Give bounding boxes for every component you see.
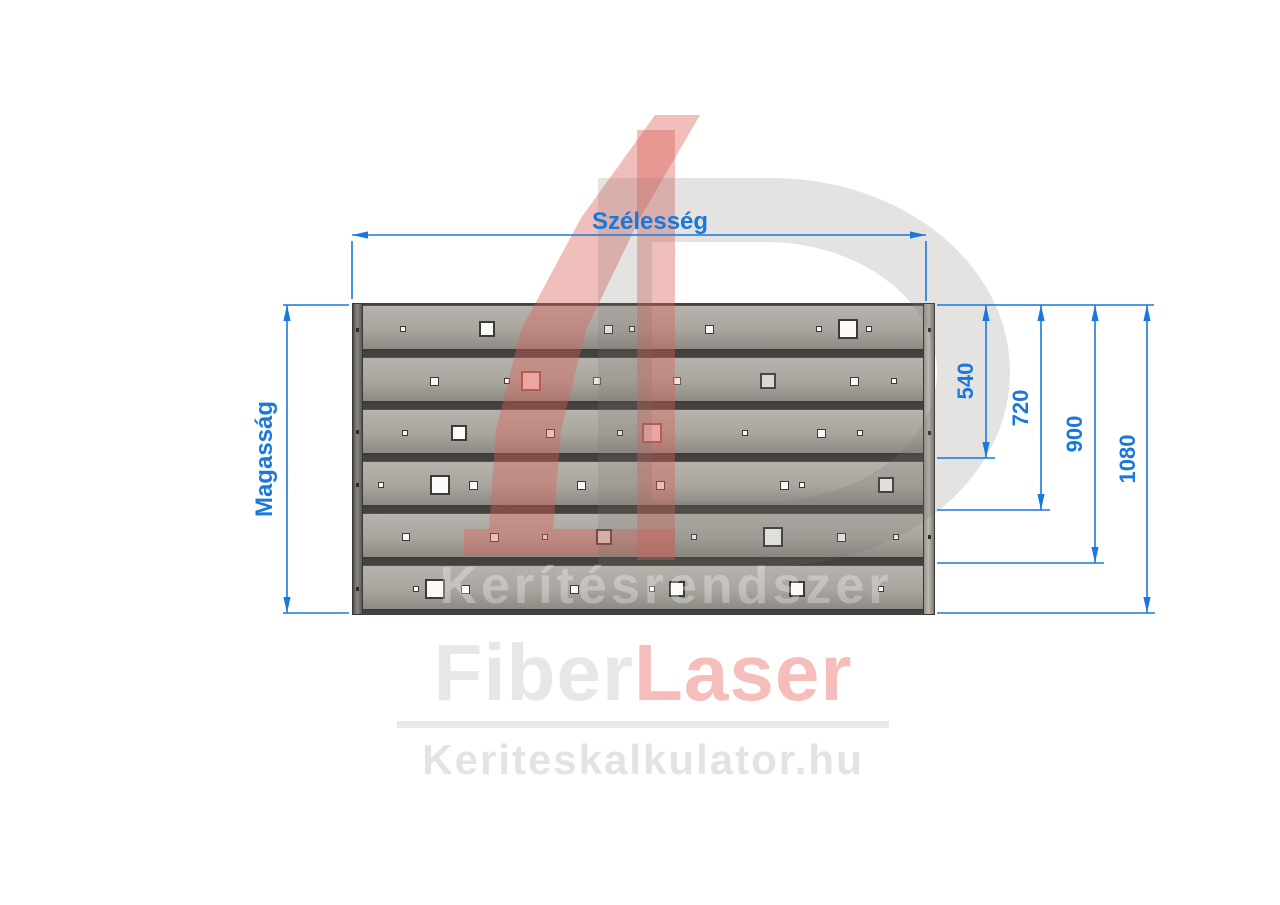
punched-hole <box>816 326 822 332</box>
dimension-value-label-900: 900 <box>1062 416 1087 453</box>
logo-fiber-text: Fiber <box>433 628 634 717</box>
right-post <box>923 303 935 615</box>
dimension-value-label-1080: 1080 <box>1115 435 1140 484</box>
fence-board <box>363 357 923 403</box>
arrowhead <box>352 231 368 238</box>
watermark-numeral-4-stem <box>637 130 675 560</box>
punched-hole <box>629 326 635 332</box>
punched-hole <box>799 482 805 488</box>
punched-hole <box>593 377 601 385</box>
punched-hole <box>542 534 548 540</box>
punched-hole <box>837 533 846 542</box>
fence-board <box>363 409 923 455</box>
punched-hole <box>469 481 478 490</box>
punched-hole <box>691 534 697 540</box>
punched-hole <box>570 585 579 594</box>
punched-hole <box>642 423 662 443</box>
fence-board <box>363 565 923 611</box>
punched-hole <box>521 371 541 391</box>
punched-hole <box>617 430 623 436</box>
punched-hole <box>891 378 897 384</box>
logo-website-text: Keriteskalkulator.hu <box>343 736 943 784</box>
punched-hole <box>656 481 665 490</box>
logo-laser-text: Laser <box>634 628 852 717</box>
watermark-letter-D <box>598 178 1010 566</box>
punched-hole <box>760 373 776 389</box>
fence-board <box>363 513 923 559</box>
arrowhead <box>982 442 989 458</box>
fence-board <box>363 461 923 507</box>
footer-logo: FiberLaser Keriteskalkulator.hu <box>343 633 943 784</box>
punched-hole <box>893 534 899 540</box>
post-rivet <box>928 431 931 435</box>
arrowhead <box>283 597 290 613</box>
punched-hole <box>838 319 858 339</box>
arrowhead <box>910 231 926 238</box>
punched-hole <box>866 326 872 332</box>
arrowhead <box>283 305 290 321</box>
punched-hole <box>461 585 470 594</box>
arrowhead <box>1091 305 1098 321</box>
punched-hole <box>479 321 495 337</box>
punched-hole <box>649 586 655 592</box>
punched-hole <box>425 579 445 599</box>
watermark-brand-text: Kerítésrendszer <box>366 556 966 616</box>
punched-hole <box>400 326 406 332</box>
arrowhead <box>1091 547 1098 563</box>
punched-hole <box>504 378 510 384</box>
arrowhead <box>1037 305 1044 321</box>
logo-divider-bar <box>397 721 889 728</box>
punched-hole <box>430 475 450 495</box>
post-rivet <box>356 587 359 591</box>
punched-hole <box>430 377 439 386</box>
left-post <box>352 303 363 615</box>
post-rivet <box>356 328 359 332</box>
dimension-value-label-720: 720 <box>1008 390 1033 427</box>
arrowhead <box>1143 597 1150 613</box>
punched-hole <box>451 425 467 441</box>
post-rivet <box>928 328 931 332</box>
arrowhead <box>1037 494 1044 510</box>
watermark-numeral-4-diagonal <box>489 115 700 529</box>
punched-hole <box>817 429 826 438</box>
punched-hole <box>789 581 805 597</box>
punched-hole <box>878 586 884 592</box>
punched-hole <box>669 581 685 597</box>
dimension-value-label-540: 540 <box>953 363 978 400</box>
fence-drawing-canvas: Kerítésrendszer SzélességMagasság5407209… <box>0 0 1280 905</box>
punched-hole <box>402 430 408 436</box>
post-rivet <box>928 535 931 539</box>
watermark-numeral-4-bar <box>464 529 675 556</box>
punched-hole <box>378 482 384 488</box>
fence-board <box>363 305 923 351</box>
punched-hole <box>604 325 613 334</box>
punched-hole <box>705 325 714 334</box>
post-rivet <box>356 483 359 487</box>
punched-hole <box>763 527 783 547</box>
punched-hole <box>490 533 499 542</box>
punched-hole <box>596 529 612 545</box>
arrowhead <box>982 305 989 321</box>
punched-hole <box>850 377 859 386</box>
punched-hole <box>402 533 410 541</box>
punched-hole <box>742 430 748 436</box>
punched-hole <box>413 586 419 592</box>
fence-boards <box>363 303 923 615</box>
punched-hole <box>546 429 555 438</box>
punched-hole <box>673 377 681 385</box>
punched-hole <box>857 430 863 436</box>
punched-hole <box>780 481 789 490</box>
punched-hole <box>878 477 894 493</box>
width-dimension-label: Szélesség <box>592 208 708 235</box>
post-rivet <box>356 430 359 434</box>
punched-hole <box>577 481 586 490</box>
arrowhead <box>1143 305 1150 321</box>
fiberlaser-logo: FiberLaser <box>343 633 943 713</box>
height-dimension-label: Magasság <box>251 401 278 517</box>
